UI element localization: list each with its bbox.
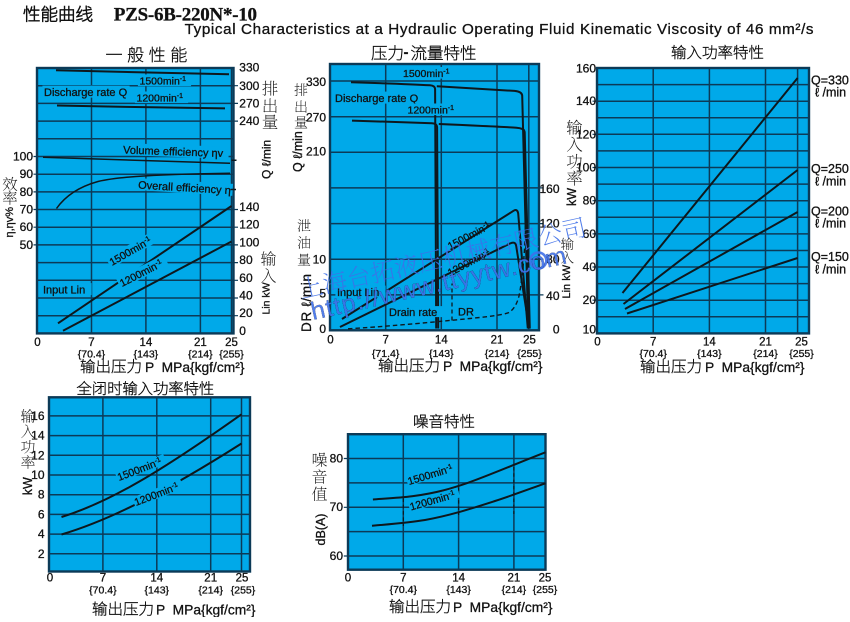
svg-text:40: 40 — [239, 289, 253, 303]
svg-text:80: 80 — [330, 451, 344, 465]
svg-text:DR: DR — [458, 307, 474, 319]
svg-text:80: 80 — [239, 253, 253, 267]
svg-text:1500min-1: 1500min-1 — [140, 76, 187, 88]
svg-text:Drain rate: Drain rate — [389, 307, 437, 319]
svg-text:Q ℓ/min: Q ℓ/min — [260, 140, 274, 179]
svg-text:kW: kW — [565, 188, 579, 206]
svg-text:{214}: {214} — [502, 584, 527, 596]
svg-text:100: 100 — [13, 149, 33, 163]
svg-text:Discharge rate Q: Discharge rate Q — [335, 93, 419, 105]
svg-text:14: 14 — [435, 335, 448, 347]
svg-text:40: 40 — [583, 260, 597, 274]
svg-text:ℓ /min: ℓ /min — [815, 175, 846, 189]
svg-text:140: 140 — [576, 94, 596, 108]
svg-text:240: 240 — [239, 114, 259, 128]
svg-text:14: 14 — [140, 337, 153, 349]
svg-text:η,ηv%: η,ηv% — [4, 207, 16, 238]
svg-text:{70.4}: {70.4} — [89, 585, 117, 597]
svg-text:Lin kW: Lin kW — [261, 282, 273, 314]
svg-text:0: 0 — [34, 337, 40, 349]
svg-text:21: 21 — [759, 337, 772, 349]
svg-text:{143}: {143} — [145, 585, 170, 597]
svg-text:160: 160 — [576, 62, 596, 76]
svg-text:330: 330 — [306, 75, 326, 89]
svg-text:{70.4}: {70.4} — [390, 584, 418, 596]
svg-text:20: 20 — [583, 293, 597, 307]
svg-text:{255}: {255} — [533, 584, 558, 596]
svg-text:14: 14 — [452, 573, 465, 585]
svg-text:70: 70 — [330, 500, 344, 514]
svg-text:140: 140 — [239, 200, 259, 214]
svg-text:P MPa{kgf/cm²}: P MPa{kgf/cm²} — [705, 360, 805, 375]
svg-text:21: 21 — [204, 573, 217, 585]
svg-text:90: 90 — [20, 167, 34, 181]
svg-text:0: 0 — [553, 323, 560, 337]
svg-text:60: 60 — [330, 549, 344, 563]
svg-text:P MPa{kgf/cm²}: P MPa{kgf/cm²} — [443, 359, 543, 374]
svg-text:60: 60 — [20, 220, 34, 234]
svg-text:kW: kW — [21, 477, 35, 495]
svg-text:0: 0 — [345, 573, 351, 585]
svg-text:6: 6 — [38, 507, 45, 521]
svg-text:{255}: {255} — [789, 348, 814, 360]
svg-text:P MPa{kgf/cm²}: P MPa{kgf/cm²} — [145, 360, 245, 375]
svg-text:10: 10 — [313, 253, 327, 267]
svg-text:80: 80 — [20, 185, 34, 199]
svg-text:60: 60 — [239, 271, 253, 285]
svg-text:8: 8 — [38, 488, 45, 502]
svg-text:1200min-1: 1200min-1 — [408, 105, 455, 117]
svg-text:14: 14 — [703, 337, 716, 349]
svg-text:160: 160 — [539, 182, 559, 196]
svg-text:25: 25 — [225, 337, 238, 349]
svg-text:10: 10 — [583, 323, 597, 337]
svg-text:{255}: {255} — [231, 585, 256, 597]
svg-text:120: 120 — [576, 127, 596, 141]
svg-text:Input Lin: Input Lin — [43, 285, 85, 297]
svg-text:{214}: {214} — [753, 348, 778, 360]
svg-text:{143}: {143} — [697, 348, 722, 360]
svg-text:270: 270 — [306, 111, 326, 125]
svg-text:25: 25 — [539, 573, 552, 585]
svg-text:P MPa{kgf/cm²}: P MPa{kgf/cm²} — [453, 600, 553, 615]
svg-text:ℓ /min: ℓ /min — [815, 217, 846, 231]
svg-text:100: 100 — [239, 235, 259, 249]
svg-text:1500min-1: 1500min-1 — [403, 68, 450, 80]
svg-text:300: 300 — [239, 79, 259, 93]
svg-text:21: 21 — [508, 573, 521, 585]
svg-text:25: 25 — [523, 335, 536, 347]
svg-text:330: 330 — [239, 60, 259, 74]
svg-text:7: 7 — [650, 337, 656, 349]
svg-text:dB(A): dB(A) — [314, 514, 328, 546]
svg-text:14: 14 — [150, 573, 163, 585]
svg-text:{143}: {143} — [446, 584, 471, 596]
svg-text:{143}: {143} — [134, 349, 159, 361]
svg-text:21: 21 — [491, 335, 504, 347]
svg-text:0: 0 — [47, 573, 53, 585]
svg-text:Discharge rate Q: Discharge rate Q — [44, 87, 128, 99]
svg-text:25: 25 — [236, 573, 249, 585]
svg-text:40: 40 — [546, 289, 560, 303]
svg-text:0: 0 — [327, 335, 333, 347]
svg-text:120: 120 — [239, 218, 259, 232]
svg-text:{70.4}: {70.4} — [78, 349, 106, 361]
svg-text:7: 7 — [88, 337, 94, 349]
svg-text:270: 270 — [239, 97, 259, 111]
svg-text:60: 60 — [583, 227, 597, 241]
svg-text:7: 7 — [100, 573, 106, 585]
svg-text:21: 21 — [194, 337, 207, 349]
svg-text:7: 7 — [400, 573, 406, 585]
svg-text:2: 2 — [38, 547, 45, 561]
svg-text:7: 7 — [382, 335, 388, 347]
svg-text:210: 210 — [306, 144, 326, 158]
svg-text:{214}: {214} — [198, 585, 223, 597]
svg-text:4: 4 — [38, 527, 45, 541]
svg-text:25: 25 — [795, 337, 808, 349]
svg-text:80: 80 — [583, 194, 597, 208]
svg-text:Typical Characteristics at a H: Typical Characteristics at a Hydraulic O… — [185, 21, 815, 38]
svg-text:ℓ /min: ℓ /min — [815, 86, 846, 100]
svg-text:{255}: {255} — [219, 349, 244, 361]
svg-text:120: 120 — [539, 217, 559, 231]
svg-text:P MPa{kgf/cm²}: P MPa{kgf/cm²} — [156, 603, 256, 618]
svg-text:50: 50 — [20, 238, 34, 252]
svg-text:70: 70 — [20, 203, 34, 217]
svg-text:20: 20 — [239, 306, 253, 320]
svg-text:0: 0 — [239, 324, 246, 338]
svg-text:14: 14 — [31, 429, 45, 443]
svg-text:1200min-1: 1200min-1 — [137, 93, 184, 105]
svg-text:Q ℓ/min: Q ℓ/min — [291, 131, 305, 172]
svg-text:-: - — [404, 44, 409, 61]
svg-text:0: 0 — [594, 337, 600, 349]
svg-text:{71.4}: {71.4} — [372, 348, 400, 360]
svg-text:{214}: {214} — [188, 349, 213, 361]
svg-text:{70.4}: {70.4} — [639, 348, 667, 360]
svg-text:ℓ /min: ℓ /min — [815, 263, 846, 277]
